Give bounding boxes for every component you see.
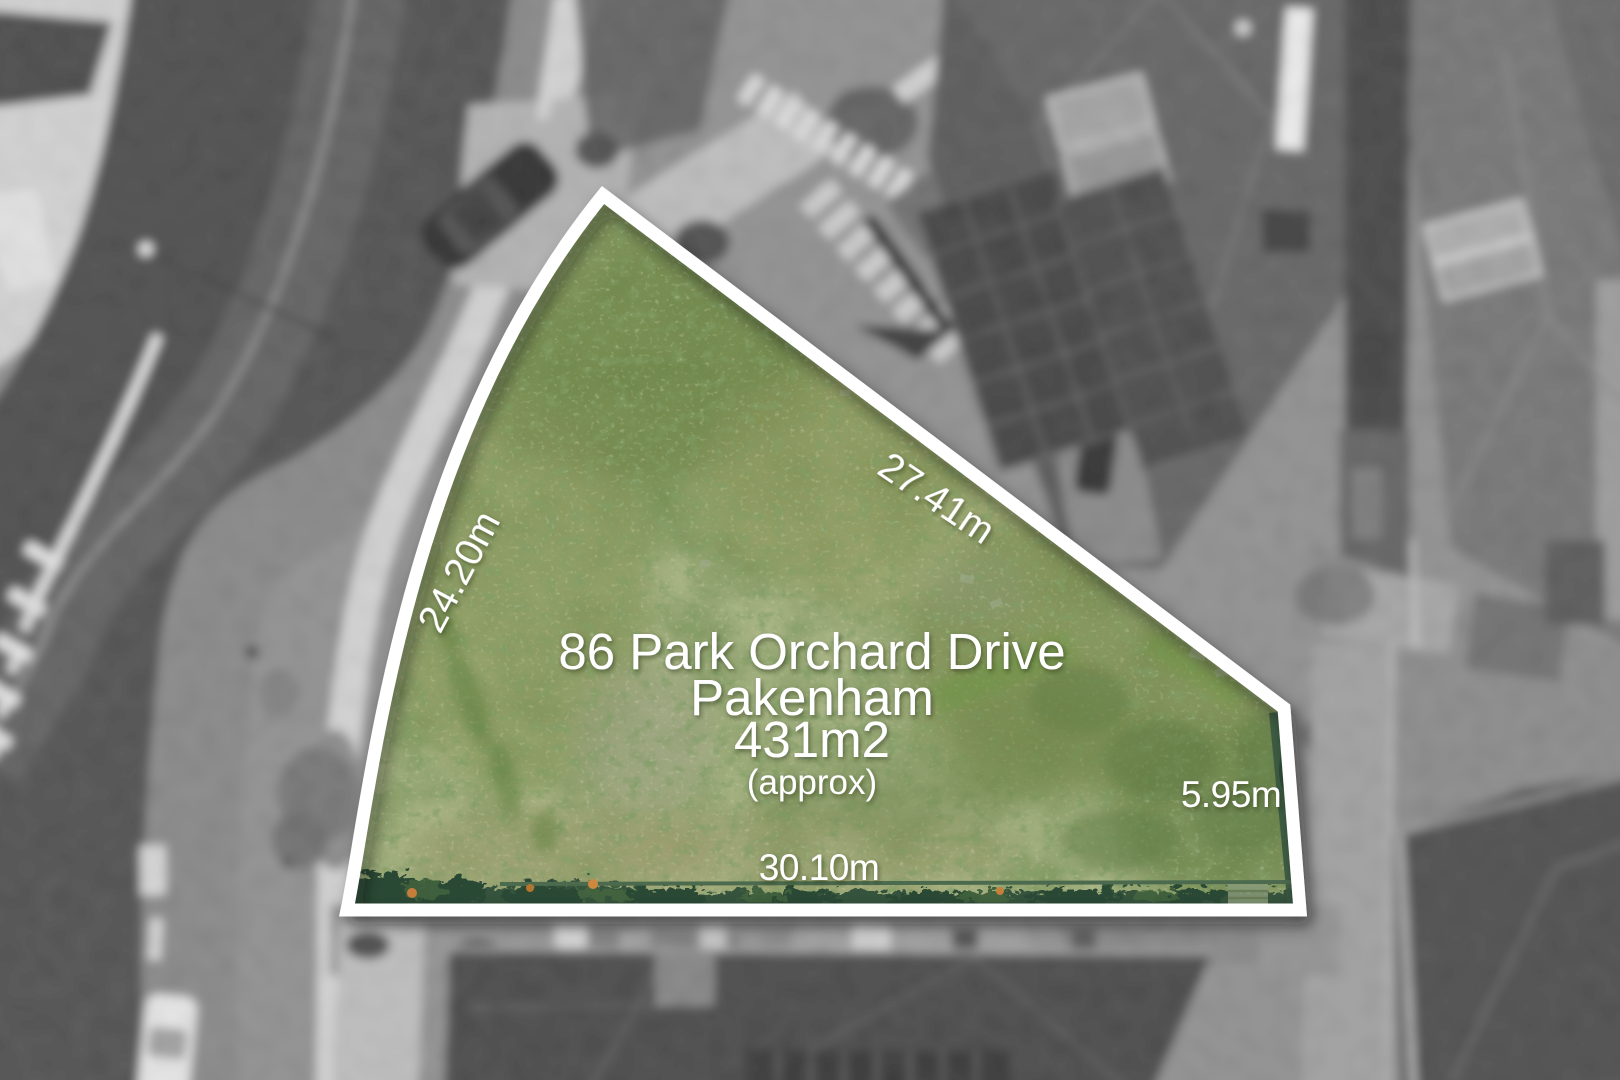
svg-text:(approx): (approx) — [747, 763, 877, 802]
svg-text:431m2: 431m2 — [734, 711, 890, 768]
svg-text:5.95m: 5.95m — [1181, 774, 1281, 815]
svg-text:30.10m: 30.10m — [759, 847, 879, 888]
